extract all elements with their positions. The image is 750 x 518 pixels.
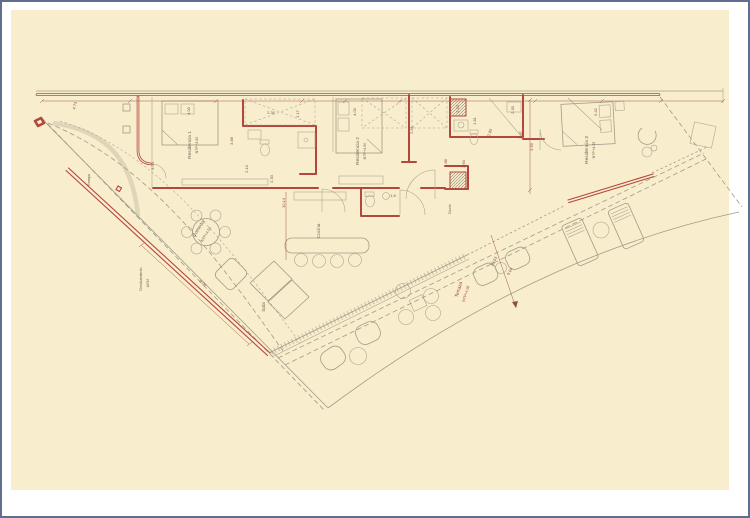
dim-text: 3.34 xyxy=(150,161,155,170)
room-level: NTP+4.35 xyxy=(592,142,596,159)
dim-text: 1.17 xyxy=(295,109,300,118)
room-label: Cocina xyxy=(316,223,322,238)
duct-shaft-icon xyxy=(450,172,466,189)
dim-text: 5.42 xyxy=(593,107,598,116)
dim-text: 1.88 xyxy=(443,158,448,167)
dim-text: 4.00 xyxy=(352,107,357,116)
room-level: A052 xyxy=(146,279,150,288)
dim-text: 2.30 xyxy=(455,104,460,113)
dim-text: 10.14 xyxy=(281,197,286,208)
plan-sheet xyxy=(11,10,729,490)
dim-text: 1.81 xyxy=(472,116,477,125)
dim-text: 2.30 xyxy=(267,110,276,115)
room-level: NTP+4.50 xyxy=(195,137,199,154)
room-level: NTP+4.50 xyxy=(363,143,367,160)
room-label: Sala xyxy=(261,302,267,312)
dim-text: 2.10 xyxy=(244,164,249,173)
dim-text: 2.30 xyxy=(510,105,515,114)
dim-text: 4.00 xyxy=(186,106,191,115)
drawing-page: Residencia 1 NTP+4.50 Residencia 2 NTP+4… xyxy=(0,0,750,518)
room-label: Deslizamiento xyxy=(139,267,143,290)
dim-text: 1.5 xyxy=(390,193,396,198)
dim-text: 2.81 xyxy=(409,125,414,134)
room-label: Residencia 1 xyxy=(187,131,193,159)
dim-text: 3.99 xyxy=(529,142,534,151)
room-label: Residencia 3 xyxy=(584,136,590,164)
dim-text: 2.30 xyxy=(269,174,274,183)
room-label: Residencia 2 xyxy=(355,137,361,165)
room-label: Rampa xyxy=(87,173,91,186)
dim-text: 3.87 xyxy=(518,130,523,139)
room-label: Ducto xyxy=(448,204,452,214)
floor-plan-canvas: Residencia 1 NTP+4.50 Residencia 2 NTP+4… xyxy=(2,2,748,516)
dim-text: 2.60 xyxy=(461,159,466,168)
dim-text: 3.88 xyxy=(229,136,234,145)
